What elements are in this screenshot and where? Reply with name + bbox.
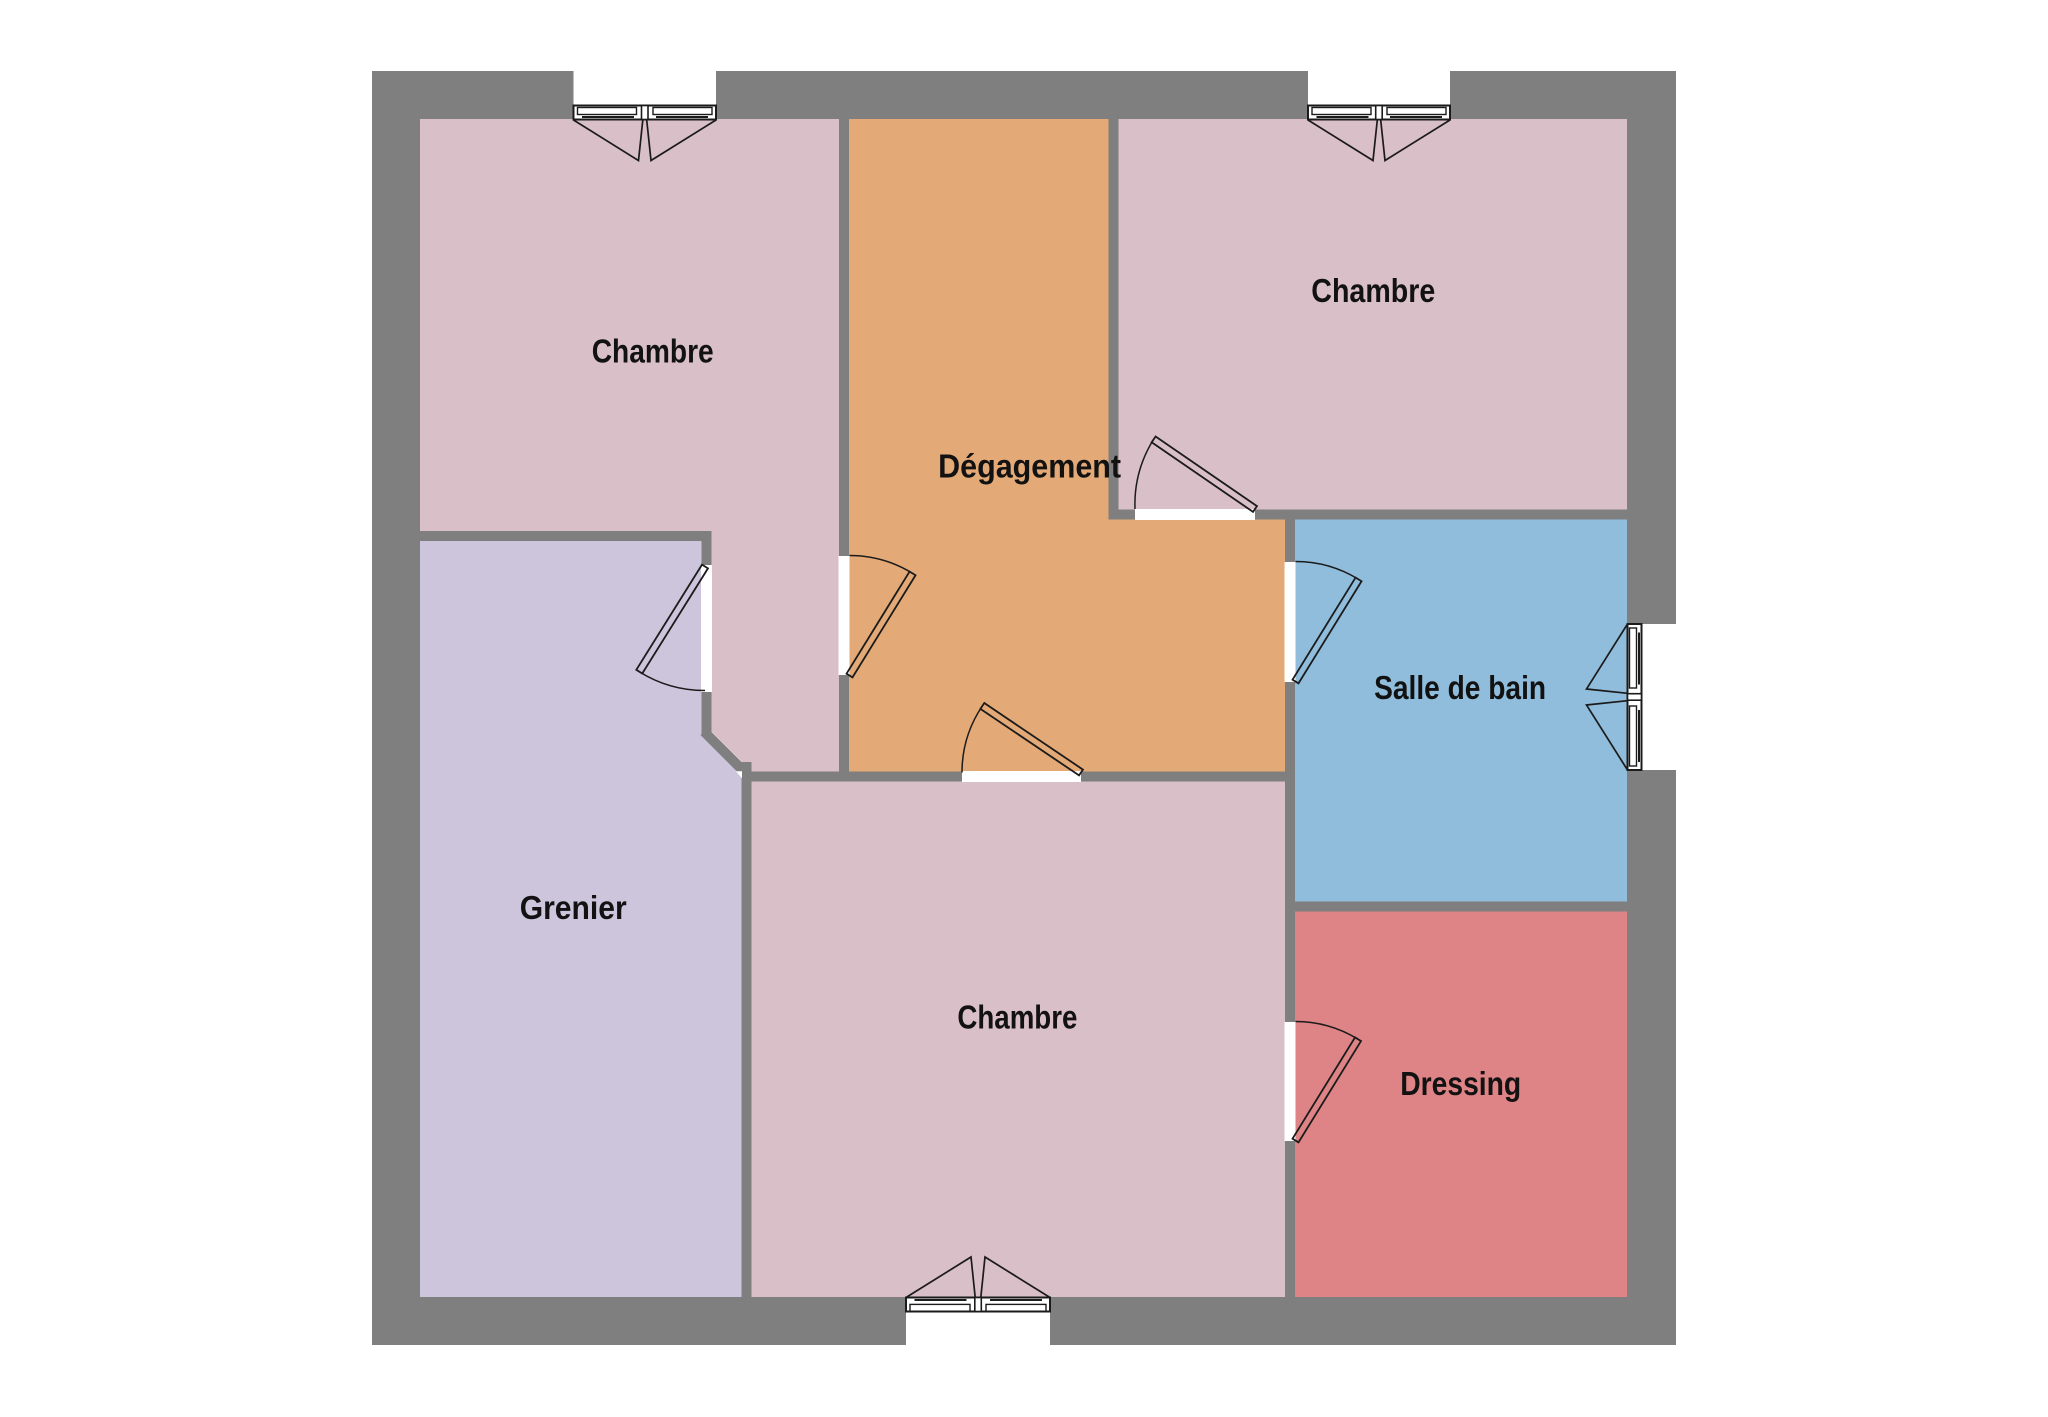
svg-text:Chambre: Chambre bbox=[1311, 272, 1435, 309]
svg-text:Dressing: Dressing bbox=[1400, 1065, 1521, 1102]
svg-text:Dégagement: Dégagement bbox=[938, 448, 1121, 485]
svg-text:Grenier: Grenier bbox=[520, 889, 627, 926]
svg-text:Salle de bain: Salle de bain bbox=[1374, 669, 1546, 706]
svg-text:Chambre: Chambre bbox=[592, 332, 714, 369]
svg-text:Chambre: Chambre bbox=[957, 999, 1077, 1036]
